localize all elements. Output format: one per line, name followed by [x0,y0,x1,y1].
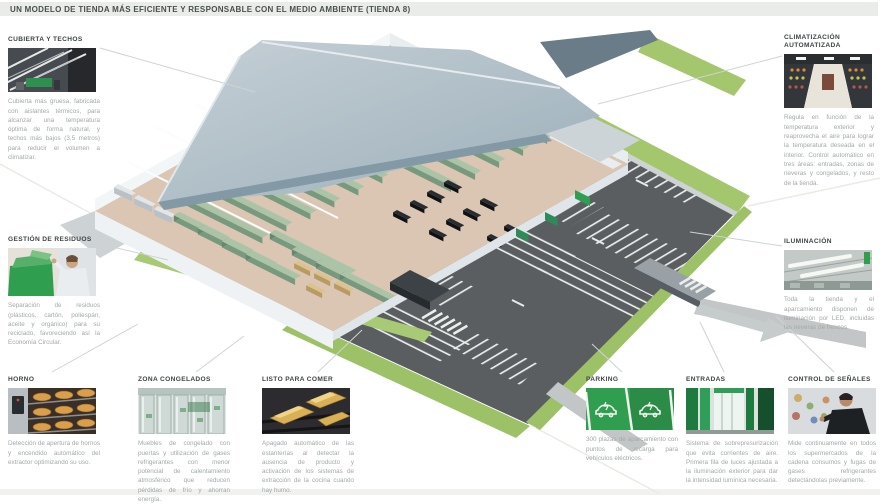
section-text: Cubierta más gruesa, fabricada con aisla… [8,97,100,162]
section-title: CLIMATIZACIÓN AUTOMATIZADA [784,34,874,50]
section-text: 300 plazas de aparcamiento con puntos de… [586,435,678,463]
section-text: Detección de apertura de hornos y encend… [8,439,100,467]
section-title: GESTIÓN DE RESIDUOS [8,236,100,244]
senales-photo [788,388,876,434]
section-title: PARKING [586,376,678,384]
section-control-de-senales: CONTROL DE SEÑALES Mide continuamente en… [788,376,876,486]
section-text: Sistema de sobrepresurización que evita … [686,439,778,486]
section-title: CUBIERTA Y TECHOS [8,36,100,44]
title-bar: UN MODELO DE TIENDA MÁS EFICIENTE Y RESP… [0,2,878,16]
section-parking: PARKING 300 plazas de aparcamiento con p… [586,376,678,463]
section-title: ILUMINACIÓN [784,238,874,246]
section-title: HORNO [8,376,100,384]
section-title: ENTRADAS [686,376,778,384]
section-title: ZONA CONGELADOS [138,376,230,384]
section-text: Muebles de congelado con puertas y utili… [138,439,230,504]
section-title: CONTROL DE SEÑALES [788,376,876,384]
section-text: Regula en función de la temperatura exte… [784,113,874,188]
climatizacion-photo [784,54,872,108]
entradas-photo [686,388,774,434]
section-listo-para-comer: LISTO PARA COMER Apagado automático de l… [262,376,354,495]
page-title: UN MODELO DE TIENDA MÁS EFICIENTE Y RESP… [10,5,410,14]
section-zona-congelados: ZONA CONGELADOS Muebles de congelado con… [138,376,230,504]
parking-photo [586,388,674,430]
horno-photo [8,388,96,434]
listo-photo [262,388,350,434]
section-text: Toda la tienda y el aparcamiento dispone… [784,295,874,332]
section-climatizacion-automatizada: CLIMATIZACIÓN AUTOMATIZADA Regula en [784,34,874,188]
section-horno: HORNO Detección de apertura de hornos y … [8,376,100,467]
section-iluminacion: ILUMINACIÓN Toda la tienda y el aparcami… [784,238,874,332]
congelados-photo [138,388,226,434]
iluminacion-photo [784,250,872,290]
section-title: LISTO PARA COMER [262,376,354,384]
section-text: Mide continuamente en todos los supermer… [788,439,876,486]
section-cubierta-y-techos: CUBIERTA Y TECHOS Cubierta más gruesa, f… [8,36,100,162]
cubierta-photo [8,48,96,92]
section-text: Apagado automático de las estanterías al… [262,439,354,495]
section-text: Separación de residuos (plásticos, cartó… [8,301,100,348]
section-entradas: ENTRADAS Sistema de sobrepresurización q… [686,376,778,486]
section-gestion-de-residuos: GESTIÓN DE RESIDUOS Separación de residu… [8,236,100,348]
residuos-photo [8,248,96,296]
